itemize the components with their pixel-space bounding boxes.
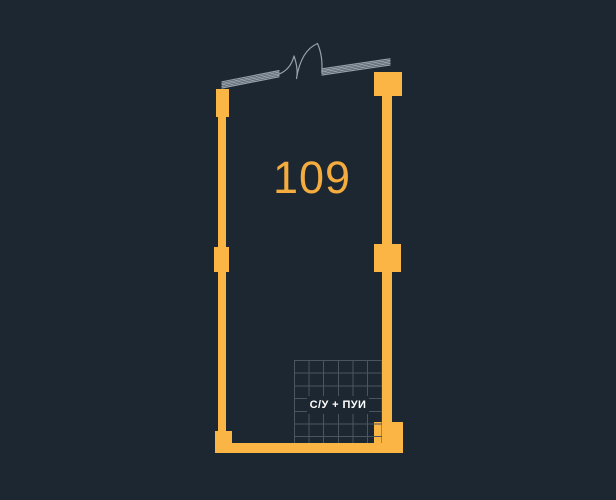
window-hatch-left-icon xyxy=(222,71,279,88)
bathroom-label: С/У + ПУИ xyxy=(290,395,386,414)
bathroom-label-text: С/У + ПУИ xyxy=(307,396,370,414)
wall-left-pilaster xyxy=(214,247,229,272)
apartment-unit-109[interactable]: 109 С/У + ПУИ xyxy=(210,40,410,460)
door-swing-icon xyxy=(278,44,322,79)
floor-plan-canvas: 109 С/У + ПУИ xyxy=(0,0,616,500)
room-number-label: 109 xyxy=(252,155,372,201)
wall-bottom xyxy=(215,443,403,453)
wall-right-column xyxy=(374,244,401,272)
